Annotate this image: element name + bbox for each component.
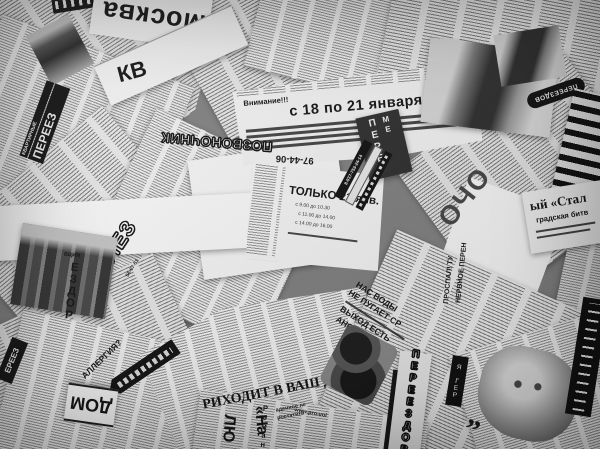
- ad-left-column: [245, 163, 286, 256]
- banner-pereezdov-text: ПЕРЕЕЗДОВ: [397, 348, 422, 449]
- announcement-attention: Внимание!!!: [243, 96, 288, 107]
- inverted-phone-text: 97-44-06: [275, 153, 314, 165]
- headline-dom-text: ДОМ: [69, 392, 113, 419]
- banner-ya-ger-text: Я ГЕР: [451, 363, 463, 399]
- nervnoe-text: НЕРВНОЕ ПЕРЕН: [455, 242, 468, 303]
- lyu-text: ЛЮ: [219, 414, 237, 443]
- ad-rule: [288, 232, 358, 242]
- clipping-stalingrad: ый «Стал градская битв: [522, 180, 600, 254]
- atsiya-text: ация: [63, 250, 80, 259]
- newspaper-collage-photo: Москва КВАРТИРНЫЕ ПЕРЕЕЗ КВ Внимание!!! …: [0, 0, 600, 449]
- ezdor-text: ЕЗДОР: [62, 261, 81, 322]
- photo-handgun: [493, 25, 566, 87]
- ad-schedule-3: с 14.00 до 16.00: [295, 221, 333, 231]
- na-text: «На: [251, 405, 270, 436]
- headline-kv-text: КВ: [115, 57, 149, 86]
- zhelez-phone: 56-07-51: [125, 259, 140, 279]
- headline-dom: ДОМ: [64, 383, 119, 428]
- lyu-big-text: ЛЮ: [205, 413, 237, 449]
